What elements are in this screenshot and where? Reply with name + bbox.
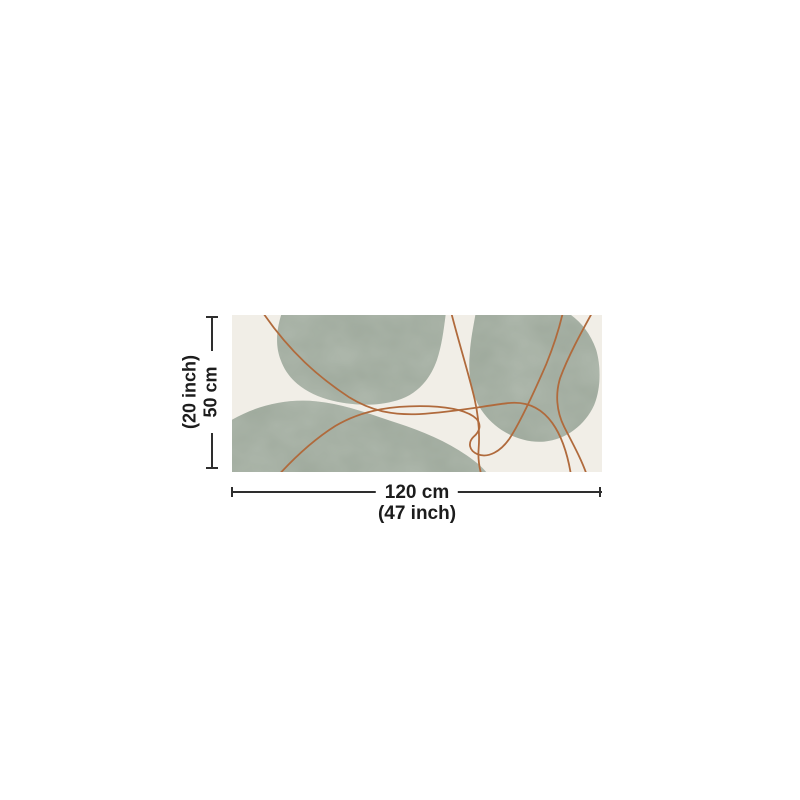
width-dimension-tick-left bbox=[231, 487, 233, 497]
height-dimension-tick-bottom bbox=[206, 467, 218, 469]
product-dimension-diagram: (20 inch) 50 cm 120 cm (47 inch) bbox=[0, 0, 800, 800]
width-dimension-tick-right bbox=[599, 487, 601, 497]
rug-artwork-svg bbox=[232, 315, 602, 472]
height-dimension-label: (20 inch) 50 cm bbox=[177, 351, 222, 433]
width-dimension-label: 120 cm bbox=[376, 482, 458, 504]
width-dimension-sublabel: (47 inch) bbox=[378, 503, 456, 525]
height-label-inch: (20 inch) bbox=[179, 355, 200, 429]
height-dimension-tick-top bbox=[206, 316, 218, 318]
rug-artwork-image bbox=[232, 315, 602, 472]
height-label-cm: 50 cm bbox=[200, 355, 221, 429]
